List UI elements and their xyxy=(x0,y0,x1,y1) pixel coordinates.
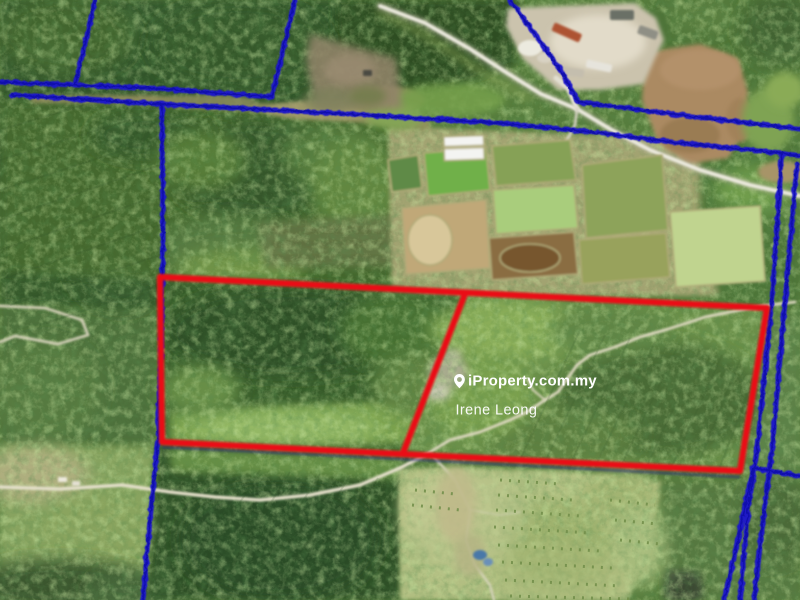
svg-text:iProperty.com.my: iProperty.com.my xyxy=(468,373,597,390)
svg-text:Irene Leong: Irene Leong xyxy=(456,403,538,419)
